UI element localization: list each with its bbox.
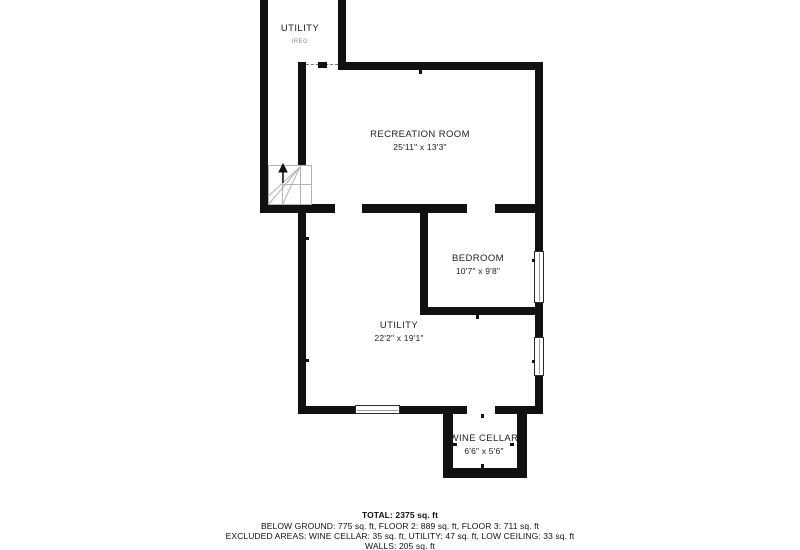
room-label-utility-top: UTILITY <box>281 23 319 34</box>
wall-stub <box>318 62 327 68</box>
room-label-recreation: RECREATION ROOM <box>370 129 470 140</box>
summary-excluded: EXCLUDED AREAS: WINE CELLAR: 35 sq. ft, … <box>0 531 800 541</box>
staircase <box>266 163 314 207</box>
wall <box>399 406 467 414</box>
dimension-tick <box>306 237 309 240</box>
summary-floors: BELOW GROUND: 775 sq. ft, FLOOR 2: 889 s… <box>0 521 800 531</box>
window <box>355 405 400 414</box>
floor-plan: UTILITY IREG RECREATION ROOM 25'11" x 13… <box>0 0 800 550</box>
wall <box>535 62 543 252</box>
window <box>534 337 544 376</box>
dimension-tick <box>306 359 309 362</box>
wall <box>338 0 346 70</box>
window-mullion <box>357 410 398 411</box>
room-dims-utility: 22'2" x 19'1" <box>374 333 423 343</box>
window <box>534 251 544 303</box>
wall <box>298 406 355 414</box>
room-dims-bedroom: 10'7" x 9'8" <box>456 266 500 276</box>
wall <box>298 204 306 414</box>
window-mullion <box>539 253 540 301</box>
wall <box>495 204 543 213</box>
room-label-wine-cellar: WINE CELLAR <box>450 433 519 444</box>
dimension-tick <box>481 414 484 418</box>
room-dims-recreation: 25'11" x 13'3" <box>393 142 447 152</box>
summary-total: TOTAL: 2375 sq. ft <box>0 510 800 520</box>
wall <box>517 406 527 478</box>
dimension-tick <box>476 315 479 319</box>
room-dims-wine-cellar: 6'6" x 5'6" <box>464 446 503 456</box>
wall <box>298 62 306 166</box>
dimension-tick <box>532 360 535 363</box>
dimension-tick <box>419 70 422 74</box>
wall <box>362 204 467 213</box>
window-mullion <box>539 339 540 374</box>
wall <box>420 307 543 315</box>
summary-walls: WALLS: 205 sq. ft <box>0 541 800 550</box>
room-label-utility: UTILITY <box>380 320 418 331</box>
wall <box>443 468 527 478</box>
dimension-tick <box>481 464 484 468</box>
room-note-irregular: IREG <box>292 39 308 45</box>
wall <box>338 62 543 70</box>
wall <box>420 204 428 307</box>
room-label-bedroom: BEDROOM <box>452 253 504 264</box>
dimension-tick <box>532 259 535 262</box>
